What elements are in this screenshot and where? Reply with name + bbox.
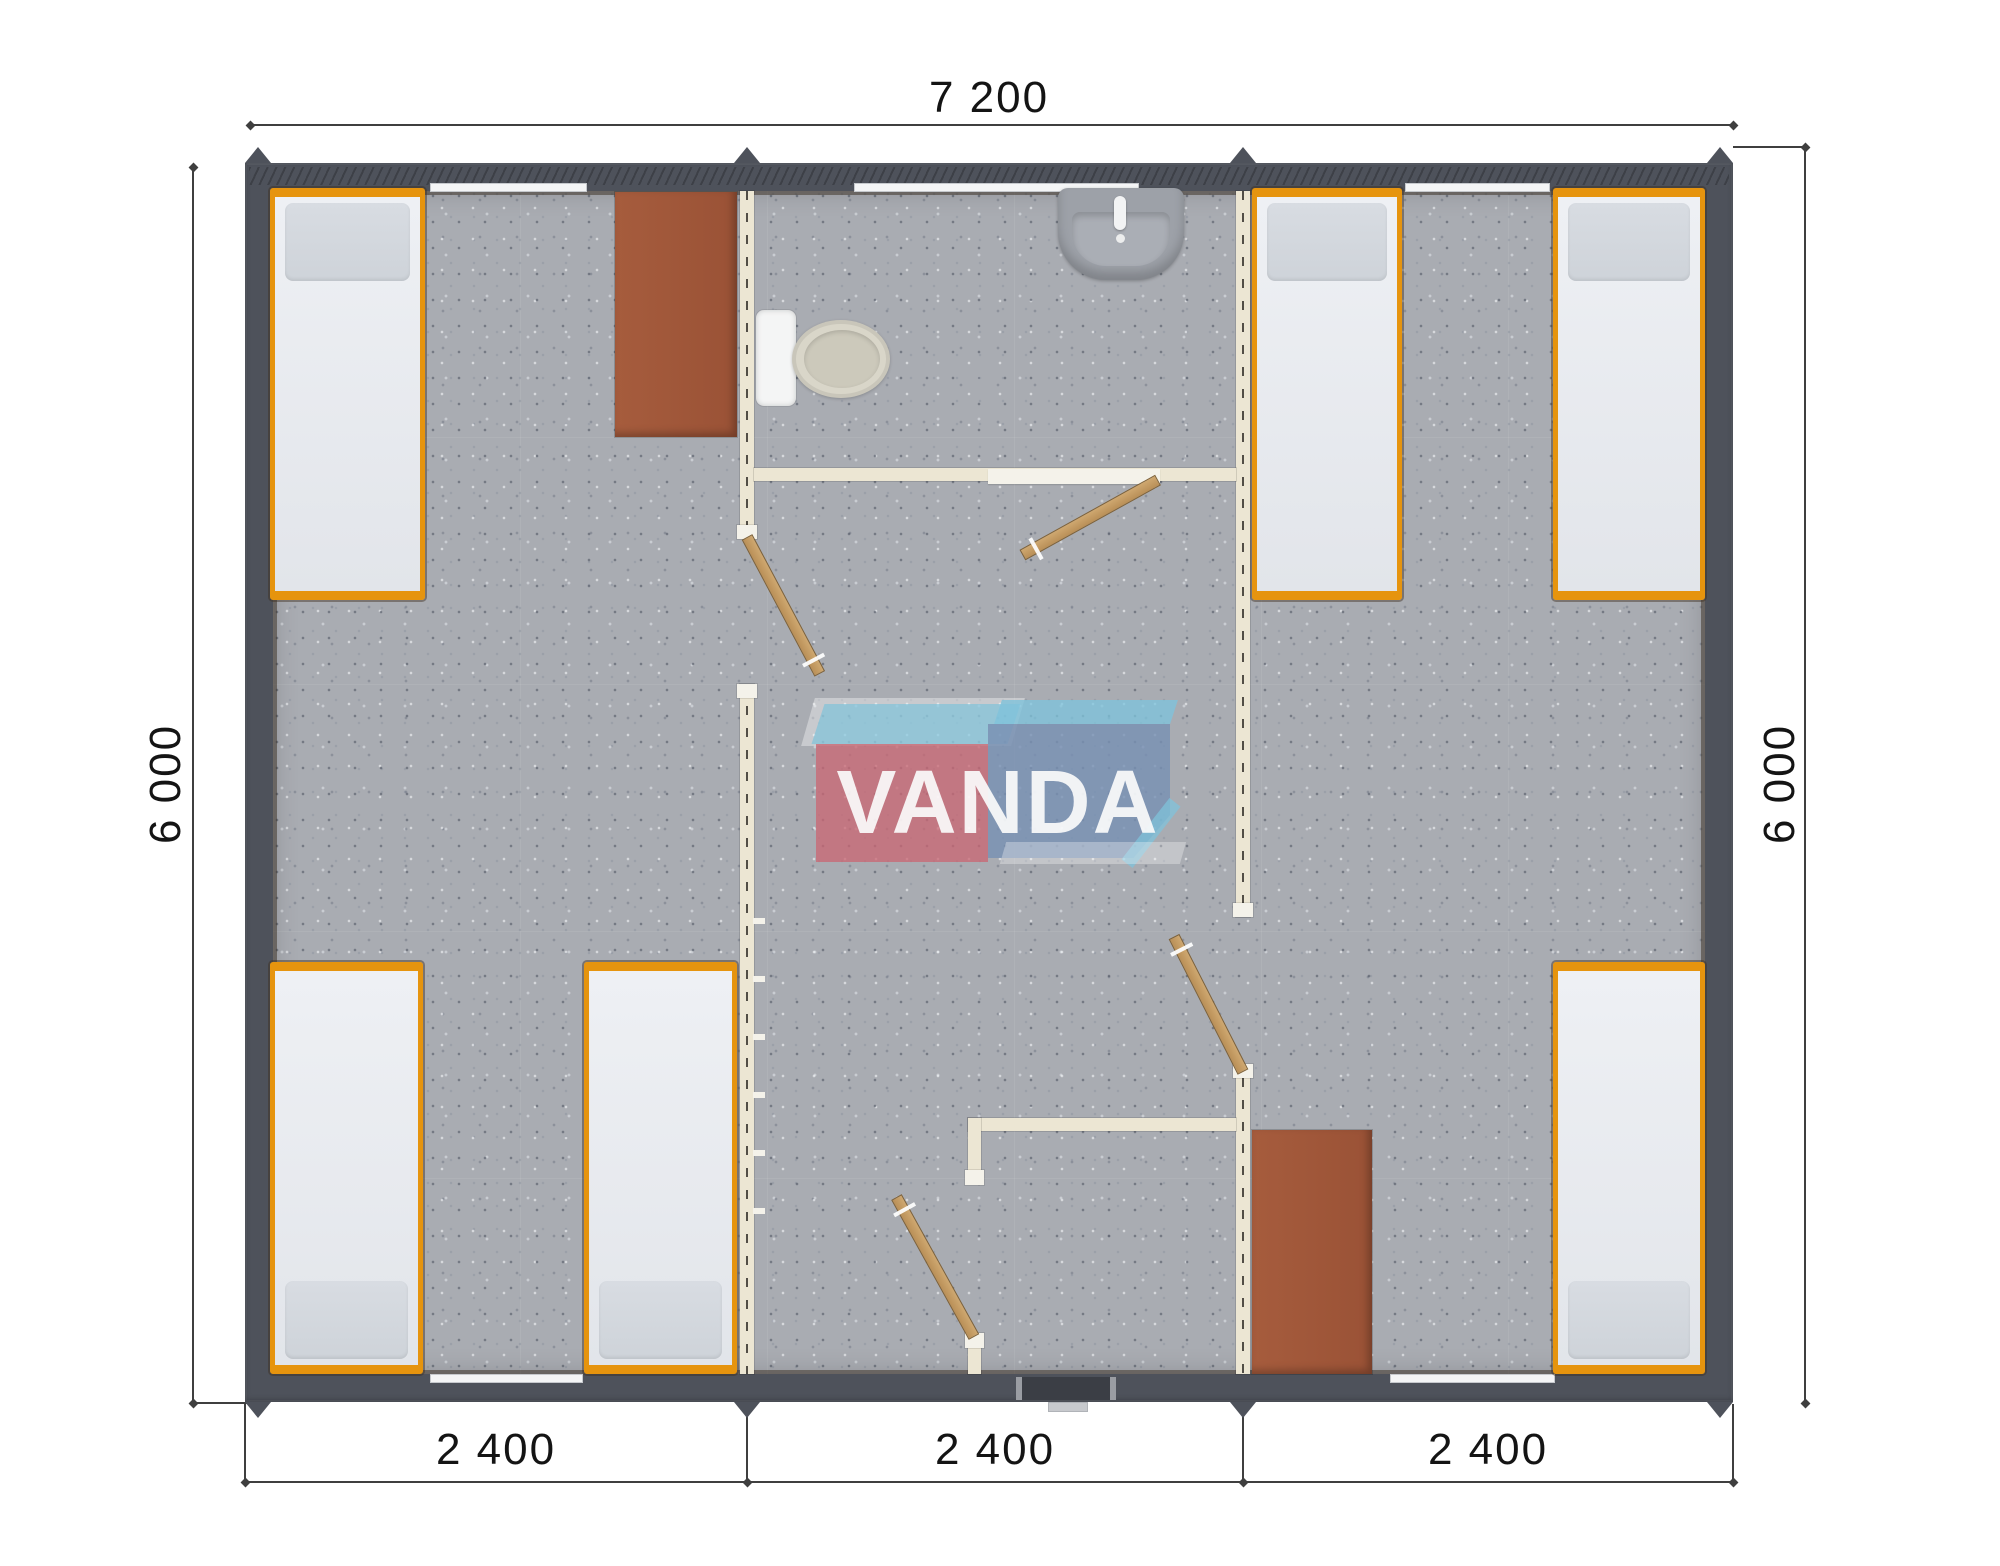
wall-tick-icon (1230, 1402, 1256, 1418)
dimension-tick (1239, 1478, 1249, 1488)
toilet (792, 320, 890, 398)
dimension-tick (246, 121, 256, 131)
entrance-door (1018, 1377, 1114, 1400)
dimension-tick (1801, 1399, 1811, 1409)
wall-stud-tab (753, 1034, 765, 1040)
bed (1553, 188, 1705, 600)
dimension-tick (1801, 143, 1811, 153)
pillow (1267, 203, 1387, 281)
wall-tick-icon (1707, 1402, 1733, 1418)
bed (270, 962, 423, 1374)
wall-tick-icon (734, 147, 760, 163)
dimension-extension-bottom-left (192, 1402, 247, 1404)
dimension-line-right (1804, 146, 1806, 1404)
wall-stud-tab (753, 918, 765, 924)
window (1405, 183, 1550, 192)
vestibule-wall-horizontal (968, 1118, 1236, 1131)
dimension-tick (1729, 121, 1739, 131)
wall-stud-tab (753, 1092, 765, 1098)
floor-plan-canvas: 7 200 6 000 6 000 2 400 2 400 2 400 (0, 0, 2000, 1566)
dimension-label-bottom-1: 2 400 (436, 1428, 556, 1472)
bathroom-door-threshold (988, 469, 1160, 484)
partition-left-upper (740, 191, 754, 537)
pillow (599, 1281, 722, 1359)
pillow (285, 1281, 408, 1359)
entrance-step (1048, 1402, 1088, 1412)
bed (1553, 962, 1705, 1374)
bed (270, 188, 425, 600)
partition-left-lower (740, 684, 754, 1374)
dimension-line-top (250, 124, 1733, 126)
wall-stud-tab (753, 976, 765, 982)
wall-stud-tab (753, 1208, 765, 1214)
vestibule-wall-vertical-lower (968, 1348, 981, 1374)
wall-stud-tab (753, 1150, 765, 1156)
pillow (285, 203, 410, 281)
partition-right-lower (1236, 1078, 1250, 1374)
watermark: VANDA (808, 694, 1188, 872)
pillow (1568, 203, 1690, 281)
faucet-icon (1114, 196, 1126, 230)
wall-tick-icon (734, 1402, 760, 1418)
dimension-tick (743, 1478, 753, 1488)
dimension-label-top: 7 200 (245, 76, 1733, 120)
wall-tick-icon (245, 147, 271, 163)
watermark-blue-box-top (994, 700, 1178, 724)
window (1390, 1374, 1555, 1383)
dimension-line-bottom (245, 1481, 1734, 1483)
door-jamb (737, 684, 757, 698)
window (430, 1374, 583, 1383)
door-jamb (965, 1170, 984, 1185)
window (430, 183, 587, 192)
pillow (1568, 1281, 1690, 1359)
dimension-tick (189, 163, 199, 173)
bed (1252, 188, 1402, 600)
dimension-label-left: 6 000 (144, 724, 188, 844)
wall-tick-icon (245, 1402, 271, 1418)
dimension-tick (1729, 1478, 1739, 1488)
desk (1252, 1130, 1372, 1374)
dimension-extension-top-right (1733, 146, 1805, 148)
watermark-text: VANDA (820, 758, 1176, 848)
partition-right-upper (1236, 191, 1250, 917)
dimension-tick (241, 1478, 251, 1488)
dimension-line-left (192, 166, 194, 1404)
sink-drain (1116, 234, 1125, 243)
dimension-label-right: 6 000 (1758, 724, 1802, 844)
door-jamb (1233, 903, 1253, 917)
dimension-label-bottom-3: 2 400 (1428, 1428, 1548, 1472)
vestibule-wall-vertical-upper (968, 1118, 981, 1170)
desk (615, 192, 737, 437)
dimension-label-bottom-2: 2 400 (935, 1428, 1055, 1472)
bed (584, 962, 737, 1374)
toilet-tank (756, 310, 796, 406)
wall-tick-icon (1230, 147, 1256, 163)
dimension-tick (189, 1399, 199, 1409)
wall-tick-icon (1707, 147, 1733, 163)
